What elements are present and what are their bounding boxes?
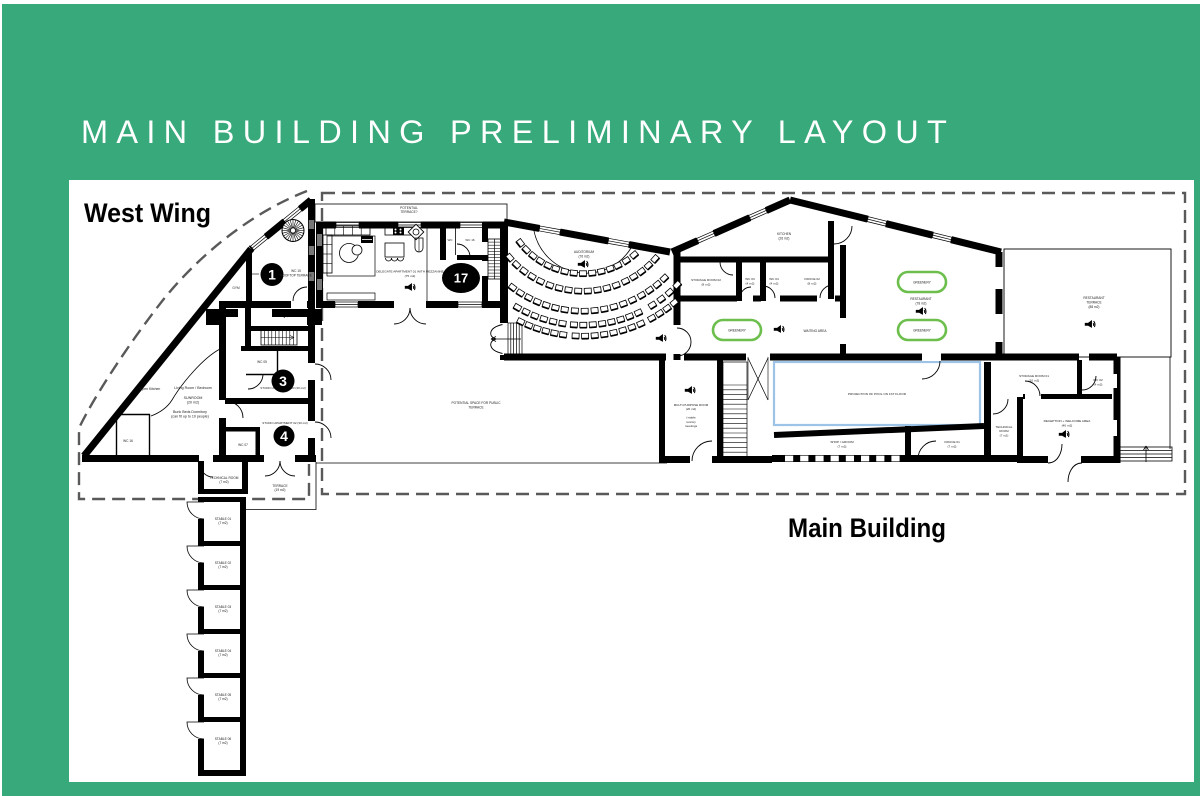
svg-text:(76 m2): (76 m2) [579, 254, 590, 258]
svg-text:(7 m2): (7 m2) [948, 444, 957, 448]
svg-text:GREENERY: GREENERY [728, 328, 747, 332]
svg-text:WC: WC [448, 238, 454, 242]
svg-text:(can fit up to 10 people): (can fit up to 10 people) [171, 415, 209, 419]
svg-text:(7 m2): (7 m2) [218, 521, 227, 525]
svg-text:OFFICE 02: OFFICE 02 [804, 277, 820, 281]
svg-text:STORAGE ROOM 01: STORAGE ROOM 01 [1019, 374, 1049, 378]
svg-text:(7 m2): (7 m2) [218, 609, 227, 613]
svg-text:WC 16: WC 16 [123, 439, 133, 443]
svg-text:1: 1 [268, 267, 276, 283]
svg-text:WC 16: WC 16 [465, 238, 475, 242]
svg-text:17: 17 [454, 271, 468, 286]
svg-text:(78 m2): (78 m2) [916, 301, 927, 305]
svg-text:(7 m2): (7 m2) [218, 697, 227, 701]
svg-text:WC 07: WC 07 [238, 443, 248, 447]
svg-text:(20 m2): (20 m2) [187, 401, 199, 405]
svg-text:(4 m2): (4 m2) [746, 281, 755, 285]
svg-text:West Wing: West Wing [84, 198, 211, 228]
svg-text:SHOP / GROOM: SHOP / GROOM [830, 440, 854, 444]
svg-text:4: 4 [280, 428, 288, 444]
svg-text:RESTAURANT: RESTAURANT [910, 297, 931, 301]
svg-text:ROOFTOP TERRACE: ROOFTOP TERRACE [280, 274, 312, 278]
svg-text:RESTAURANT: RESTAURANT [1083, 296, 1104, 300]
svg-text:(7 m2): (7 m2) [1000, 433, 1009, 437]
svg-text:(7 m2): (7 m2) [218, 565, 227, 569]
svg-text:Bunk Beds Dormitory: Bunk Beds Dormitory [173, 410, 207, 414]
svg-text:AUDITORIUM: AUDITORIUM [574, 250, 594, 254]
svg-text:meetings: meetings [685, 424, 698, 428]
svg-text:GREENERY: GREENERY [913, 280, 932, 284]
svg-text:WC 04: WC 04 [769, 277, 779, 281]
svg-text:(20 m2): (20 m2) [686, 407, 696, 411]
svg-text:PROJECTION OF POOL ON 1ST FLOO: PROJECTION OF POOL ON 1ST FLOOR [848, 392, 907, 396]
svg-text:POTENTIAL SPACE FOR PUBLIC: POTENTIAL SPACE FOR PUBLIC [451, 401, 501, 405]
svg-text:STORAGE ROOM 02: STORAGE ROOM 02 [691, 278, 721, 282]
svg-text:(4 m2): (4 m2) [1094, 382, 1103, 386]
svg-text:KITCHEN: KITCHEN [777, 232, 792, 236]
svg-text:(88 m2): (88 m2) [1089, 305, 1100, 309]
svg-text:STUDIO APARTMENT 02 (30 m2): STUDIO APARTMENT 02 (30 m2) [262, 421, 308, 425]
svg-text:(4 m2): (4 m2) [770, 281, 779, 285]
svg-text:(75 m2): (75 m2) [405, 274, 416, 278]
svg-text:SUNROOM: SUNROOM [184, 396, 203, 400]
svg-text:MAIN BUILDING PRELIMINARY LAYO: MAIN BUILDING PRELIMINARY LAYOUT [81, 114, 955, 150]
svg-text:TERRACE: TERRACE [1086, 300, 1101, 304]
svg-text:Living Room / Bedroom: Living Room / Bedroom [174, 386, 212, 390]
svg-text:(7 m2): (7 m2) [218, 653, 227, 657]
svg-text:(7 m2): (7 m2) [218, 741, 227, 745]
svg-text:(26 m2): (26 m2) [779, 236, 790, 240]
svg-text:3: 3 [279, 373, 287, 389]
svg-text:GREENERY: GREENERY [913, 328, 932, 332]
svg-text:(40 m2): (40 m2) [1062, 423, 1073, 427]
svg-text:OFFICE 01: OFFICE 01 [944, 440, 960, 444]
svg-text:TERRACE: TERRACE [468, 405, 483, 409]
svg-text:(8 m2): (8 m2) [702, 282, 711, 286]
svg-text:DELEGATE APARTMENT 01 WITH MEZ: DELEGATE APARTMENT 01 WITH MEZZANINE [376, 270, 444, 274]
svg-text:Main Building: Main Building [788, 513, 946, 543]
svg-text:(19 m2): (19 m2) [275, 488, 286, 492]
svg-text:TERRACE?: TERRACE? [400, 210, 417, 214]
svg-text:Open Kitchen: Open Kitchen [140, 387, 161, 391]
svg-text:RECEPTION + WELCOME AREA: RECEPTION + WELCOME AREA [1044, 419, 1092, 423]
svg-text:GYM: GYM [232, 286, 240, 290]
svg-text:(7 m2): (7 m2) [219, 480, 228, 484]
svg-text:(8 m2): (8 m2) [808, 281, 817, 285]
svg-text:WC 05: WC 05 [257, 360, 267, 364]
svg-text:WAITING AREA: WAITING AREA [804, 329, 828, 333]
svg-text:WC 15: WC 15 [291, 269, 301, 273]
svg-text:(7 m2): (7 m2) [838, 444, 847, 448]
svg-text:WC 03: WC 03 [745, 277, 755, 281]
